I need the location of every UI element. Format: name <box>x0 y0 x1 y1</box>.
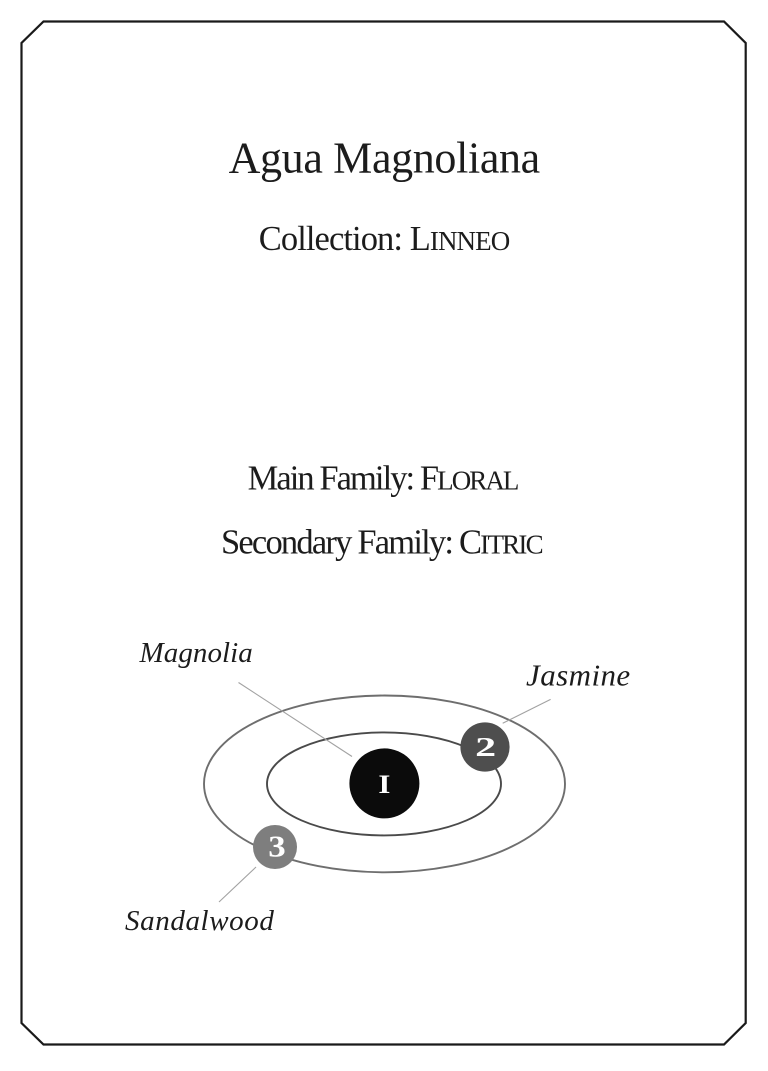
svg-text:Main Family: FLORAL: Main Family: FLORAL <box>248 459 520 497</box>
svg-text:2: 2 <box>475 732 496 762</box>
svg-text:3: 3 <box>268 829 286 864</box>
svg-text:Secondary Family: CITRIC: Secondary Family: CITRIC <box>221 524 544 562</box>
svg-text:Sandalwood: Sandalwood <box>125 905 274 937</box>
svg-text:I: I <box>378 770 390 799</box>
svg-text:Jasmine: Jasmine <box>526 658 630 693</box>
svg-text:Magnolia: Magnolia <box>139 637 253 669</box>
svg-text:Agua Magnoliana: Agua Magnoliana <box>229 134 541 183</box>
svg-text:Collection: LINNEO: Collection: LINNEO <box>259 220 510 258</box>
